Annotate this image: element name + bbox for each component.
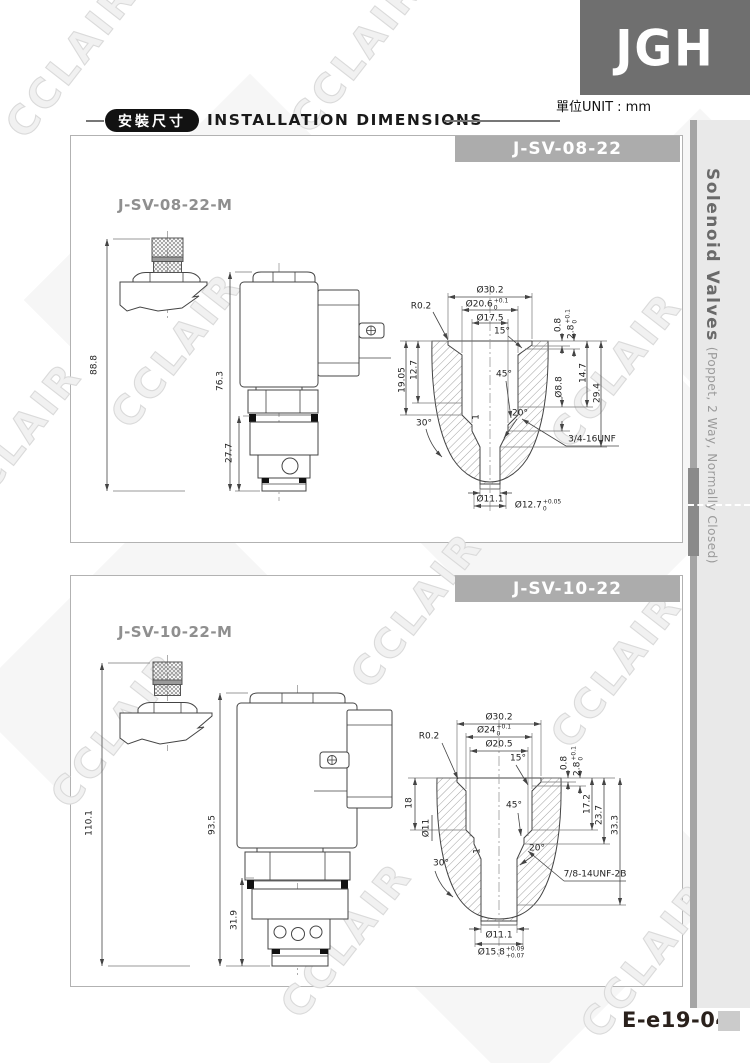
- dim-d294: 29.4: [594, 383, 603, 403]
- side-rule-accent: [688, 468, 699, 556]
- header-rule-right: [444, 120, 560, 122]
- dim-chamfer: 1: [474, 848, 483, 854]
- side-rule: [690, 120, 697, 1008]
- dim-d111: Ø11.1: [476, 496, 503, 505]
- dim-s28: 2.8+0.10: [571, 746, 584, 776]
- dim-d237: 23.7: [596, 805, 605, 825]
- dim-a45: 45°: [496, 371, 512, 380]
- dim-d111: Ø11.1: [485, 932, 512, 941]
- section-title: INSTALLATION DIMENSIONS: [207, 111, 483, 129]
- dim-a30: 30°: [416, 420, 432, 429]
- header-rule-left: [86, 120, 104, 122]
- dim-d206: Ø20.6+0.10: [466, 298, 509, 311]
- dim-cartridge: 31.9: [231, 910, 240, 930]
- dim-cartridge: 27.7: [226, 443, 235, 463]
- dim-a15: 15°: [494, 328, 510, 337]
- dim-s08: 0.8: [555, 318, 564, 332]
- dim-r02: R0.2: [419, 733, 440, 742]
- dim-s28: 2.8+0.10: [565, 309, 578, 339]
- dim-coil: 76.3: [217, 371, 226, 391]
- panel1-drawing: [70, 135, 681, 541]
- brand-logo: JGH: [615, 18, 714, 76]
- dim-d147: 14.7: [580, 363, 589, 383]
- panel2: J-SV-10-22 J-SV-10-22-M: [70, 575, 681, 985]
- side-category-subtitle: (Poppet, 2 Way, Normally Closed): [705, 347, 719, 564]
- dim-coil: 93.5: [209, 815, 218, 835]
- dim-a20: 20°: [529, 845, 545, 854]
- dim-a20: 20°: [512, 410, 528, 419]
- dim-s08: 0.8: [561, 756, 570, 770]
- dim-d333: 33.3: [612, 815, 621, 835]
- unit-note: 單位UNIT : mm: [556, 96, 676, 115]
- dim-d88: Ø8.8: [556, 376, 565, 397]
- dim-d158: Ø15.8+0.09+0.07: [478, 946, 525, 959]
- section-badge: 安裝尺寸: [105, 109, 199, 132]
- dim-d30: Ø30.2: [485, 714, 512, 723]
- dim-d11: Ø11: [423, 819, 432, 838]
- dim-overall: 88.8: [91, 355, 100, 375]
- dim-a45: 45°: [506, 802, 522, 811]
- dim-d127: Ø12.7+0.050: [515, 499, 562, 512]
- doc-code-marker: [718, 1011, 740, 1031]
- brand-logo-box: JGH: [580, 0, 750, 95]
- dim-thread: 3/4-16UNF: [568, 436, 616, 445]
- dim-depth1: 19.05: [399, 367, 408, 393]
- dim-a15: 15°: [510, 755, 526, 764]
- panel2-drawing: [70, 575, 681, 985]
- dim-d205: Ø20.5: [485, 741, 512, 750]
- dim-d175: Ø17.5: [476, 315, 503, 324]
- doc-code: E-e19-04: [622, 1008, 730, 1032]
- dim-thread: 7/8-14UNF-2B: [564, 871, 627, 880]
- dim-d172: 17.2: [584, 794, 593, 814]
- panel1: J-SV-08-22 J-SV-08-22-M: [70, 135, 681, 541]
- dim-d24: Ø24+0.10: [477, 724, 511, 737]
- side-category: Solenoid Valves (Poppet, 2 Way, Normally…: [702, 168, 722, 564]
- side-category-title: Solenoid Valves: [702, 168, 722, 342]
- catalog-page: CCLAIR CCLAIR CCLAIR CCLAIR CCLAIR CCLAI…: [0, 0, 750, 1063]
- dim-depth1: 18: [406, 797, 415, 808]
- dim-d30: Ø30.2: [476, 287, 503, 296]
- dim-r02: R0.2: [411, 303, 432, 312]
- dim-depth2: 12.7: [411, 360, 420, 380]
- dim-overall: 110.1: [86, 810, 95, 836]
- dim-a30: 30°: [433, 860, 449, 869]
- dim-chamfer: 1: [473, 414, 482, 420]
